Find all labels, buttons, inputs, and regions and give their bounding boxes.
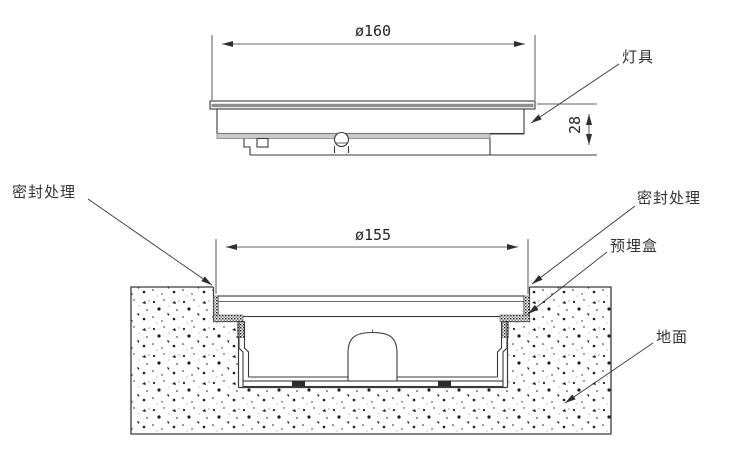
dim-text-height-28: 28 bbox=[567, 109, 583, 141]
label-seal-right: 密封处理 bbox=[637, 189, 701, 207]
fixture-connector bbox=[335, 133, 349, 154]
fixture-flange-band bbox=[212, 104, 534, 107]
label-ground: 地面 bbox=[656, 328, 688, 346]
label-seal-left: 密封处理 bbox=[12, 183, 76, 201]
label-light-fixture: 灯具 bbox=[622, 48, 654, 66]
dim-text-diameter-155: ø155 bbox=[340, 227, 406, 243]
fixture-side-view bbox=[210, 35, 619, 155]
fixture-body bbox=[217, 109, 524, 134]
leader-seal-left bbox=[88, 199, 212, 285]
fixture-plate-section bbox=[218, 296, 524, 317]
dimension-diameter-155 bbox=[216, 239, 528, 294]
fixture-base-shelf bbox=[217, 134, 490, 139]
label-embedded-box: 预埋盒 bbox=[610, 237, 658, 255]
fixture-tab bbox=[257, 139, 268, 148]
embedded-box bbox=[239, 322, 507, 387]
dim-text-diameter-160: ø160 bbox=[340, 23, 406, 39]
cable-dome bbox=[348, 333, 397, 383]
dimension-diameter-160 bbox=[212, 35, 535, 100]
installation-diagram: ø160 28 灯具 ø155 密封处理 密封处理 预埋盒 地面 bbox=[0, 0, 743, 457]
